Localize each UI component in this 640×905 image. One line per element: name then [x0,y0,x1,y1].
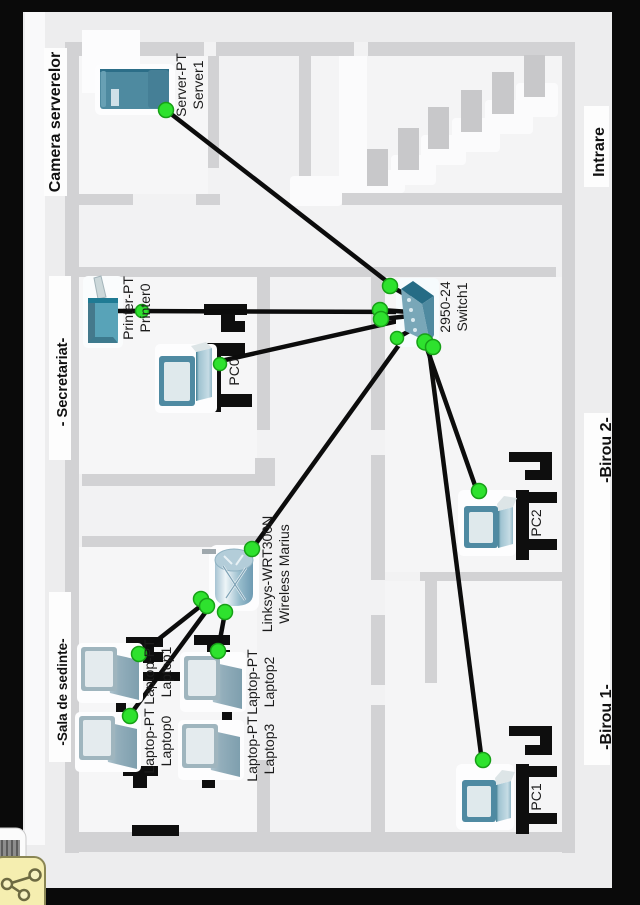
svg-text:-Birou 1-: -Birou 1- [598,684,615,750]
svg-text:Laptop-PT: Laptop-PT [244,649,260,715]
svg-text:PC2: PC2 [528,509,544,536]
svg-text:Laptop-PT: Laptop-PT [141,639,157,705]
svg-text:Wireless Marius: Wireless Marius [276,524,292,624]
svg-text:PC0: PC0 [226,358,242,385]
svg-text:Laptop2: Laptop2 [261,656,277,707]
svg-text:Laptop3: Laptop3 [261,723,277,774]
svg-text:Laptop-PT: Laptop-PT [244,716,260,782]
svg-text:-Sala de sedinte-: -Sala de sedinte- [55,638,70,745]
svg-text:Intrare: Intrare [591,127,608,177]
svg-text:Camera serverelor: Camera serverelor [47,52,64,193]
svg-text:Printer0: Printer0 [137,283,153,332]
svg-text:Linksys-WRT300N: Linksys-WRT300N [259,516,275,632]
svg-text:Laptop-PT: Laptop-PT [141,708,157,774]
svg-text:Printer-PT: Printer-PT [120,276,136,340]
svg-text:PC1: PC1 [528,783,544,810]
svg-text:Server-PT: Server-PT [173,53,189,117]
svg-text:Server1: Server1 [190,60,206,109]
svg-text:2950-24: 2950-24 [437,281,453,333]
svg-text:- Secretariat-: - Secretariat- [55,338,71,427]
svg-text:Laptop0: Laptop0 [158,715,174,766]
svg-text:-Birou 2-: -Birou 2- [598,417,615,483]
svg-text:Laptop1: Laptop1 [158,646,174,697]
svg-text:Switch1: Switch1 [454,282,470,331]
